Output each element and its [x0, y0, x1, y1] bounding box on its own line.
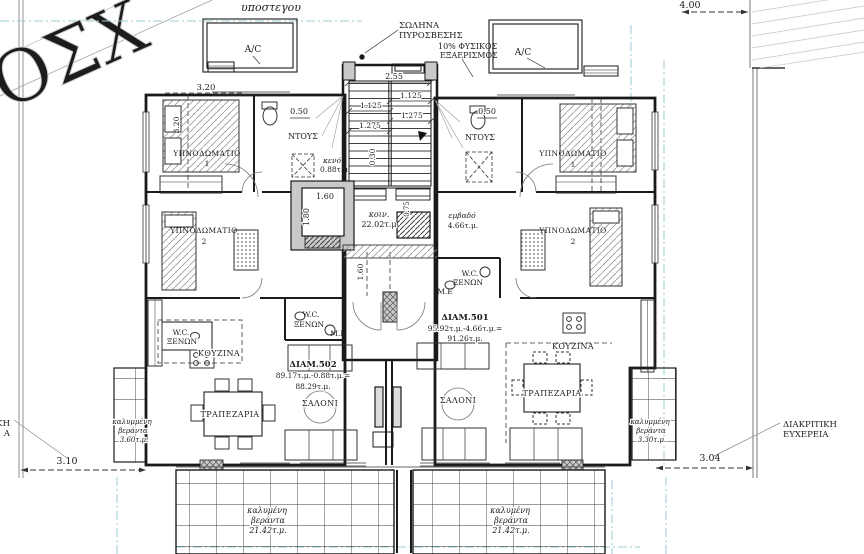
wc-center-left-me: Μ.Ε [330, 329, 346, 338]
veranda-big-right-1: καλυμένη [489, 506, 530, 515]
canopy-right [489, 20, 582, 73]
grille-right [396, 189, 430, 200]
common-label: κοιν. [368, 210, 390, 219]
apt501-name: ΔΙΑΜ.501 [441, 313, 488, 323]
fire-pipe-note-1: ΣΩΛΗΝΑ [399, 21, 440, 31]
stair-dim-width: 2.55 [385, 72, 403, 81]
bedroom2-right-label: ΥΠΝΟΔΩΜΑΤΙΟ [538, 226, 606, 235]
veranda-big-right-2: βεράντα [493, 516, 528, 525]
living-right-label: ΣΑΛΟΝΙ [440, 396, 476, 405]
wc-left-label: W.C. [173, 328, 190, 337]
watermark-text: ΟΣΧ [0, 0, 160, 126]
bedroom1-right-label: ΥΠΝΟΔΩΜΑΤΙΟ [538, 149, 606, 158]
veranda-right-area: 3.30τ.μ. [638, 436, 666, 444]
top-notes: ΣΩΛΗΝΑ ΠΥΡΟΣΒΕΣΗΣ 10% ΦΥΣΙΚΟΣ ΕΞΑΕΡΙΣΜΟΣ… [244, 21, 532, 60]
bedroom1-left-label: ΥΠΝΟΔΩΜΑΤΙΟ [172, 149, 240, 158]
dim-top-right: 4.00 [679, 0, 700, 11]
lift-width-dim: 1.60 [316, 192, 334, 201]
bedroom2-left-label: ΥΠΝΟΔΩΜΑΤΙΟ [169, 226, 237, 235]
shower-left-label: ΝΤΟΥΣ [288, 132, 318, 141]
void-area: 0.88τ.μ [320, 165, 348, 174]
entry-dim: 1.60 [356, 263, 365, 280]
stair-dim-t1: 1.125 [400, 91, 422, 100]
bedroom2-left-num: 2 [202, 237, 207, 246]
watermark: ΟΣΧ [0, 0, 160, 126]
duct-box [397, 212, 430, 238]
vent-note-1: 10% ΦΥΣΙΚΟΣ [438, 42, 498, 51]
wc-center-left-label: W.C. [303, 310, 320, 319]
boundary-note-right-1: ΔΙΑΚΡΙΤΙΚΗ [783, 420, 837, 430]
kitchen-left-label: ΚΟΥΖΙΝΑ [198, 349, 240, 358]
landing-hatch [343, 245, 437, 258]
pier-top-left [343, 62, 355, 80]
dim-050-left: 0.50 [290, 107, 308, 116]
veranda-left-area: 3.60τ.μ. [120, 436, 148, 444]
wc-right-guests: ΞΕΝΩΝ [453, 278, 484, 287]
bedroom1-left-num: 1 [205, 159, 210, 168]
vent-note-2: ΕΞΑΕΡΙΣΜΟΣ [440, 51, 498, 60]
apt502-total: 88.29τ.μ. [295, 382, 330, 391]
shaft-label: εμβαδό [448, 211, 476, 220]
dining-left-label: ΤΡΑΠΕΖΑΡΙΑ [201, 410, 260, 419]
void-label: κενό [322, 156, 342, 165]
dim-320-v: 3.20 [172, 116, 181, 133]
shaft-area: 4.66τ.μ. [448, 221, 479, 230]
bedroom1-right-num: 1 [571, 160, 576, 169]
stair-dim-t4: 1.275 [359, 121, 381, 130]
fire-pipe-note-2: ΠΥΡΟΣΒΕΣΗΣ [399, 31, 463, 41]
ac-right-label: A/C [514, 48, 532, 58]
floor-plan-drawing: ΟΣΧ 4.00 3.10 3.04 ΔΙΑΚΡΙΤΙΚΗ ΕΥΧΕΡΕΙΑ Κ… [0, 0, 864, 554]
bedroom2-right-num: 2 [571, 237, 576, 246]
veranda-big-left-1: καλυμένη [246, 506, 287, 515]
wc-center-left-guests: ΞΕΝΩΝ [294, 320, 325, 329]
veranda-left-2: βεράντα [117, 427, 148, 435]
dim-050-right: 0.50 [478, 107, 496, 116]
boundary-note-left-2: Α [3, 429, 11, 439]
veranda-big-right-area: 21.42τ.μ. [491, 526, 530, 535]
boundary-note-right-2: ΕΥΧΕΡΕΙΑ [783, 430, 829, 440]
apt502-name: ΔΙΑΜ.502 [289, 360, 336, 370]
apt502-calc: 89.17τ.μ.-0.88τ.μ.= [276, 371, 351, 380]
stair-dim-t3: 1.275 [401, 111, 423, 120]
wc-left-guests: ΞΕΝΩΝ [167, 337, 198, 346]
veranda-right-1: καλυμμένη [629, 418, 670, 426]
veranda-left-1: καλυμμένη [111, 418, 152, 426]
duct-dim: 0.75 [403, 201, 411, 217]
lift-depth-dim: 1.80 [302, 208, 311, 226]
stair-dim-riser: 0.30 [368, 148, 377, 165]
stair-dim-t2: 1.125 [360, 101, 382, 110]
grille-left [352, 189, 386, 200]
apt501-total: 91.26τ.μ. [447, 334, 482, 343]
kitchen-right-label: ΚΟΥΖΙΝΑ [552, 342, 594, 351]
common-area: 22.02τ.μ [361, 220, 396, 229]
apt501-calc: 95.92τ.μ.-4.66τ.μ.= [428, 324, 503, 333]
pier-top-right [425, 62, 437, 80]
canopy-note: υποστεγου [241, 1, 301, 14]
dining-right-label: ΤΡΑΠΕΖΑΡΙΑ [523, 389, 582, 398]
veranda-big-left-area: 21.42τ.μ. [248, 526, 287, 535]
dim-320-h: 3.20 [197, 83, 216, 93]
ac-left-label: A/C [244, 45, 262, 55]
wc-right-me: Μ.Ε [437, 287, 453, 296]
veranda-right-2: βεράντα [635, 427, 666, 435]
boundary-note-left-1: ΚΗ [0, 419, 10, 429]
shower-right-label: ΝΤΟΥΣ [465, 133, 495, 142]
wc-right-label: W.C. [462, 269, 479, 278]
veranda-big-left-2: βεράντα [250, 516, 285, 525]
living-left-label: ΣΑΛΟΝΙ [302, 399, 338, 408]
floor-plan-page: ΟΣΧ 4.00 3.10 3.04 ΔΙΑΚΡΙΤΙΚΗ ΕΥΧΕΡΕΙΑ Κ… [0, 0, 864, 554]
